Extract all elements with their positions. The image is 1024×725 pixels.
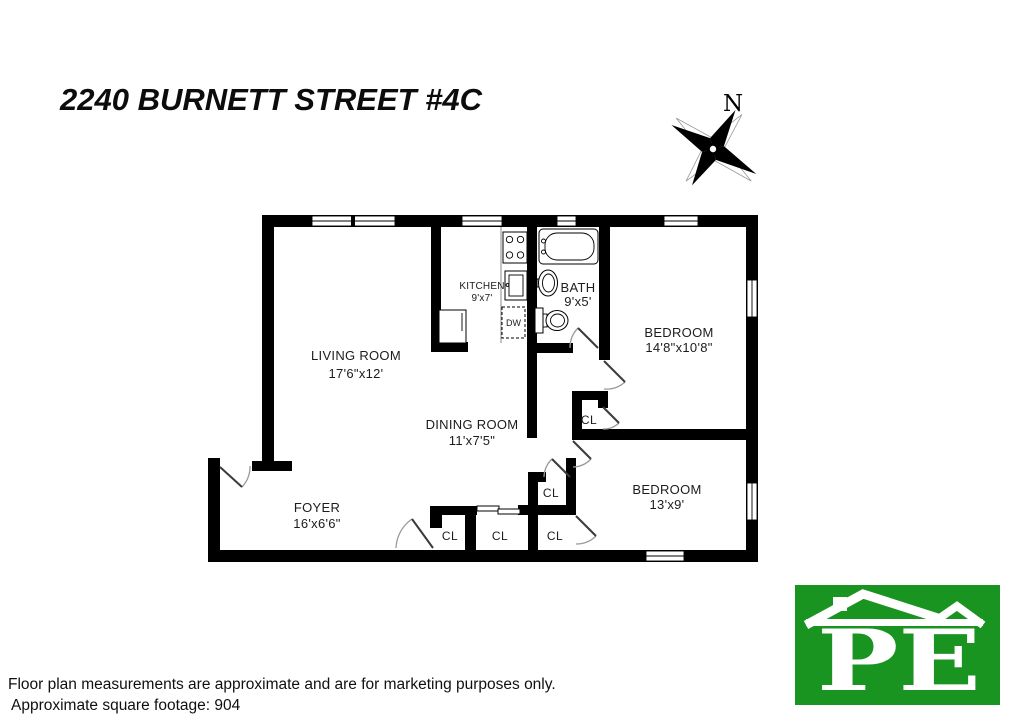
kitchen-label: KITCHEN (459, 281, 504, 292)
foyer-dims: 16'x6'6" (293, 516, 340, 531)
closet2-label: CL (543, 486, 559, 500)
bathtub (539, 229, 598, 264)
footer: Floor plan measurements are approximate … (8, 674, 556, 716)
floorplan-drawing: N (0, 0, 1024, 725)
door-bath (570, 328, 598, 348)
foyer-label: FOYER (294, 500, 340, 515)
refrigerator (439, 310, 466, 343)
living-room-label: LIVING ROOM (311, 348, 401, 363)
floorplan-page: 2240 BURNETT STREET #4C (0, 0, 1024, 725)
kitchen-dims: 9'x7' (472, 293, 493, 304)
closet3-label: CL (442, 529, 458, 543)
wall-closet2-right (566, 458, 576, 513)
wall-entry-flange (252, 461, 292, 471)
wall-bath-bottom (527, 343, 573, 353)
bath-label: BATH (561, 280, 596, 295)
dishwasher: DW (502, 307, 525, 338)
closet4-label: CL (492, 529, 508, 543)
wall-dining-hall-divider (527, 352, 537, 438)
window-living-room (312, 215, 395, 227)
toilet (535, 308, 568, 333)
wall-exterior-left-lower (208, 458, 220, 562)
living-room-dims: 17'6"x12' (329, 366, 384, 381)
door-closet1 (603, 407, 619, 429)
wall-closet2-top-stub (528, 472, 546, 482)
closet5-label: CL (547, 529, 563, 543)
bath-dims: 9'x5' (564, 294, 591, 309)
compass-rose: N (641, 76, 789, 221)
closet1-label: CL (581, 413, 597, 427)
door-bedroom1 (604, 361, 625, 389)
bedroom2-dims: 13'x9' (650, 497, 685, 512)
wall-bath-right (599, 227, 610, 360)
wall-exterior-left-upper (262, 215, 274, 461)
door-closet4-sliding (477, 506, 520, 514)
door-entry (220, 466, 250, 487)
logo-chimney (833, 597, 847, 611)
window-bedroom1-top (664, 216, 698, 226)
stove (503, 232, 527, 263)
wall-closet3-4-divider (465, 506, 476, 552)
wall-bedroom-divider (572, 429, 746, 440)
compass-north-label: N (723, 91, 743, 117)
window-bath (557, 216, 576, 226)
footer-disclaimer: Floor plan measurements are approximate … (8, 674, 556, 695)
dining-room-label: DINING ROOM (426, 417, 519, 432)
kitchen-sink (505, 271, 527, 300)
door-closet5 (576, 516, 596, 544)
door-closet3 (396, 519, 433, 548)
bath-sink (537, 270, 558, 296)
wall-closet3-stub (430, 506, 442, 528)
bedroom2-label: BEDROOM (632, 482, 701, 497)
window-bedroom2-right (747, 483, 757, 520)
broker-logo: PE (795, 585, 1000, 710)
logo-monogram: PE (817, 611, 981, 710)
window-kitchen (462, 216, 502, 226)
window-bedroom1-right (747, 280, 757, 317)
dishwasher-label: DW (506, 318, 521, 328)
bedroom1-label: BEDROOM (644, 325, 713, 340)
footer-square-footage: Approximate square footage: 904 (8, 695, 556, 716)
wall-closet1-right-stub (598, 391, 608, 408)
wall-kitchen-bath-divider (527, 227, 537, 353)
dining-room-dims: 11'x7'5" (449, 433, 496, 448)
bedroom1-dims: 14'8"x10'8" (645, 340, 712, 355)
window-bedroom2-bottom (646, 551, 684, 561)
wall-closet-row-top-right (518, 505, 576, 515)
